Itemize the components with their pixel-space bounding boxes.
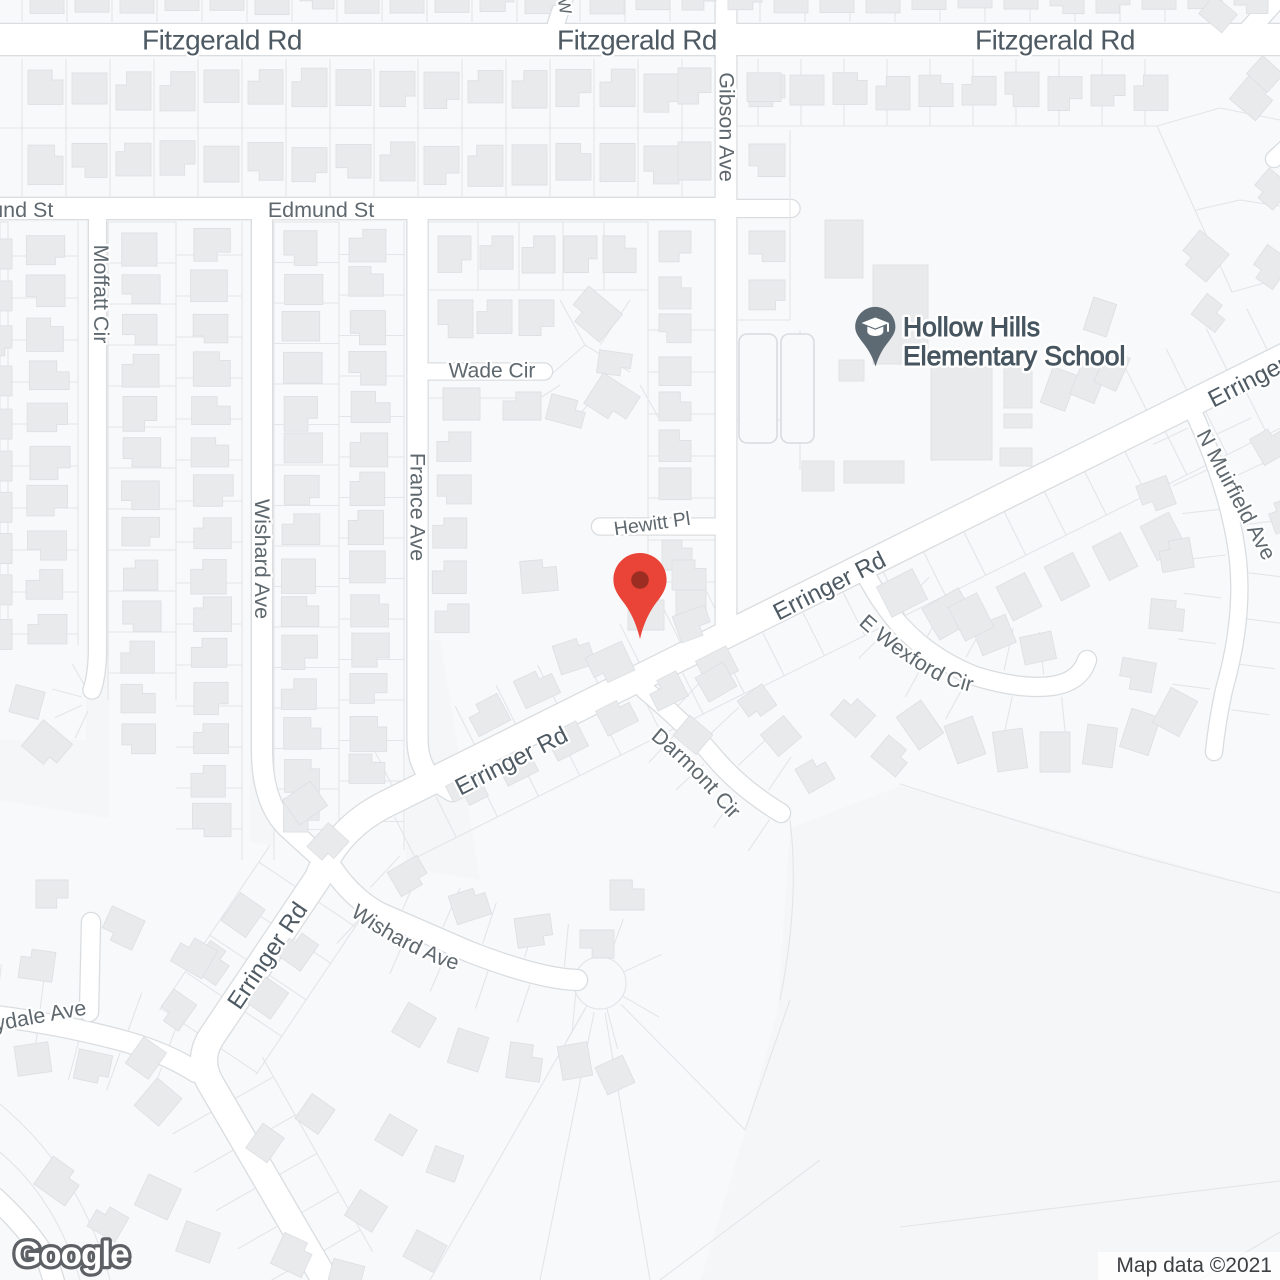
svg-text:Gibson Ave: Gibson Ave <box>715 72 739 182</box>
svg-text:Fitzgerald Rd: Fitzgerald Rd <box>557 25 717 56</box>
svg-text:Moffatt Cir: Moffatt Cir <box>89 245 113 344</box>
svg-text:Google: Google <box>14 1235 129 1274</box>
svg-text:Edmund St: Edmund St <box>268 198 374 222</box>
svg-text:Edmund St: Edmund St <box>0 198 53 222</box>
svg-text:Fitzgerald Rd: Fitzgerald Rd <box>975 25 1135 56</box>
svg-text:Wishard Ave: Wishard Ave <box>250 499 274 619</box>
svg-text:Map data ©2021: Map data ©2021 <box>1116 1254 1272 1277</box>
svg-text:France Ave: France Ave <box>406 453 430 561</box>
svg-text:Wade Cir: Wade Cir <box>449 360 536 383</box>
svg-text:Fitzgerald Rd: Fitzgerald Rd <box>142 25 302 56</box>
svg-text:Hollow Hills: Hollow Hills <box>903 312 1040 342</box>
svg-text:Elementary School: Elementary School <box>903 341 1125 371</box>
